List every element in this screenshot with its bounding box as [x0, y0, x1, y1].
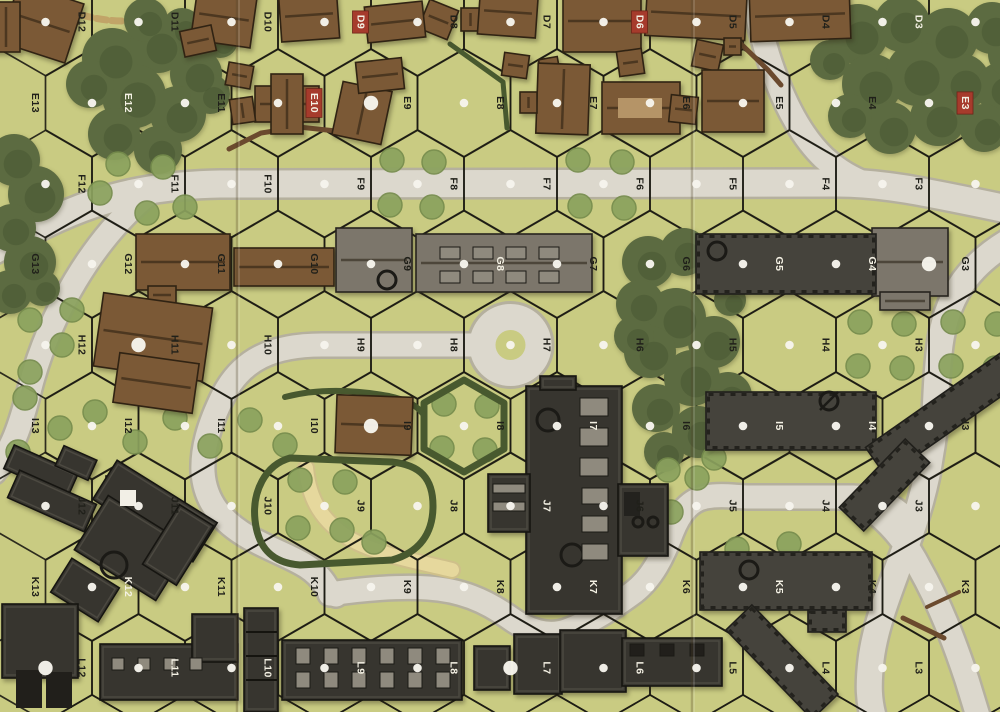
- hex-center-dot-G11: [274, 260, 283, 269]
- hex-label-H5: H5: [727, 338, 739, 352]
- window-row: [473, 271, 493, 283]
- hex-center-dot-J9: [413, 502, 422, 511]
- hex-center-dot-D12: [134, 18, 143, 27]
- orchard-tree: [273, 433, 297, 457]
- svg-text:I5: I5: [773, 421, 785, 431]
- window-row: [580, 398, 608, 416]
- hex-label-H8: H8: [448, 338, 460, 352]
- wood-building: [520, 92, 537, 113]
- hex-label-J10: J10: [262, 496, 274, 515]
- hex-label-F12: F12: [76, 174, 88, 194]
- svg-text:F8: F8: [448, 177, 460, 190]
- orchard-tree: [88, 181, 112, 205]
- orchard-tree: [362, 530, 386, 554]
- svg-text:H6: H6: [634, 338, 646, 352]
- hex-wargame-board: D12D11D10D9D8D7D6D5D4D3D2E13E12E11E10E9E…: [0, 0, 1000, 712]
- svg-text:D12: D12: [76, 12, 88, 33]
- svg-text:I11: I11: [215, 418, 227, 434]
- svg-text:I3: I3: [959, 421, 971, 431]
- window-row: [539, 247, 559, 259]
- hex-center-dot-K5: [832, 583, 841, 592]
- hex-label-J5: J5: [727, 500, 739, 513]
- svg-text:L6: L6: [634, 661, 646, 674]
- hex-label-H11: H11: [169, 335, 181, 355]
- hex-center-dot-G9: [460, 260, 469, 269]
- svg-text:L5: L5: [727, 661, 739, 674]
- hex-label-I7: I7: [587, 421, 599, 431]
- hex-center-dot-J7: [599, 502, 608, 511]
- orchard-tree: [892, 312, 916, 336]
- woods-texture: [904, 60, 939, 95]
- hex-label-K12: K12: [122, 577, 134, 598]
- hex-label-G7: G7: [587, 256, 599, 271]
- wood-building: [616, 48, 644, 76]
- svg-text:J7: J7: [541, 500, 553, 513]
- window-row: [380, 648, 394, 664]
- hex-label-L3: L3: [913, 661, 925, 674]
- hex-label-K9: K9: [401, 580, 413, 594]
- hex-center-dot-G6: [739, 260, 748, 269]
- hex-center-dot-F4: [878, 180, 887, 189]
- hex-center-dot-J8: [506, 502, 515, 511]
- hex-label-F6: F6: [634, 177, 646, 190]
- hex-center-dot-D7: [599, 18, 608, 27]
- hex-label-I10: I10: [308, 418, 320, 434]
- roof-mark: [120, 490, 136, 506]
- wood-building: [180, 25, 217, 57]
- svg-text:H4: H4: [820, 338, 832, 352]
- orchard-tree: [198, 434, 222, 458]
- hex-label-D10: D10: [262, 12, 274, 33]
- svg-text:K5: K5: [773, 580, 785, 594]
- hex-center-dot-G4: [922, 257, 936, 271]
- svg-text:H3: H3: [913, 338, 925, 352]
- svg-text:G3: G3: [959, 256, 971, 271]
- svg-text:J12: J12: [76, 496, 88, 515]
- hex-label-J6: J6: [634, 500, 646, 513]
- woods-texture: [975, 119, 1000, 145]
- hex-center-dot-I6: [739, 422, 748, 431]
- svg-text:F3: F3: [913, 177, 925, 190]
- hex-label-D3: D3: [913, 15, 925, 29]
- hex-center-dot-K9: [460, 583, 469, 592]
- orchard-tree: [566, 148, 590, 172]
- window-row: [660, 644, 674, 656]
- hex-label-E6: E6: [680, 96, 692, 110]
- hex-center-dot-J3: [971, 502, 980, 511]
- hex-center-dot-K8: [553, 583, 562, 592]
- woods-texture: [880, 118, 909, 147]
- svg-text:L8: L8: [448, 661, 460, 674]
- hex-label-D12: D12: [76, 12, 88, 33]
- hex-center-dot-H3: [971, 341, 980, 350]
- svg-text:F9: F9: [355, 177, 367, 190]
- woods-texture: [25, 183, 56, 214]
- fact-building: [540, 376, 576, 390]
- hex-center-dot-F10: [320, 180, 329, 189]
- hex-center-dot-L10: [320, 664, 329, 673]
- hex-label-J4: J4: [820, 500, 832, 513]
- woods-texture: [4, 150, 33, 179]
- woods-texture: [647, 399, 673, 425]
- hex-center-dot-K7: [646, 583, 655, 592]
- hex-label-I8: I8: [494, 421, 506, 431]
- hex-label-G6: G6: [680, 256, 692, 271]
- hex-label-I13: I13: [29, 418, 41, 434]
- svg-text:J5: J5: [727, 500, 739, 513]
- svg-text:L12: L12: [76, 658, 88, 678]
- orchard-tree: [378, 193, 402, 217]
- window-row: [580, 458, 608, 476]
- svg-text:J9: J9: [355, 500, 367, 513]
- hex-center-dot-I11: [274, 422, 283, 431]
- svg-text:H7: H7: [541, 338, 553, 352]
- hex-label-I12: I12: [122, 418, 134, 434]
- svg-text:H12: H12: [76, 335, 88, 356]
- hex-label-E5: E5: [773, 96, 785, 110]
- hex-center-dot-G10: [367, 260, 376, 269]
- svg-text:G8: G8: [494, 256, 506, 271]
- hex-label-G12: G12: [122, 253, 134, 274]
- hex-label-L12: L12: [76, 658, 88, 678]
- hex-label-E10: E10: [306, 89, 322, 118]
- hex-center-dot-E13: [88, 99, 97, 108]
- hex-center-dot-F7: [599, 180, 608, 189]
- orchard-tree: [135, 201, 159, 225]
- woods-texture: [3, 219, 29, 245]
- orchard-tree: [18, 308, 42, 332]
- hex-center-dot-F12: [134, 180, 143, 189]
- orchard-tree: [941, 310, 965, 334]
- hex-label-I6: I6: [680, 421, 692, 431]
- svg-text:K9: K9: [401, 580, 413, 594]
- svg-text:L4: L4: [820, 661, 832, 674]
- woods-texture: [104, 124, 133, 153]
- window-row: [408, 648, 422, 664]
- hex-center-dot-H7: [599, 341, 608, 350]
- hex-center-dot-L8: [503, 661, 517, 675]
- hex-label-H9: H9: [355, 338, 367, 352]
- orchard-tree: [612, 196, 636, 220]
- wood-building: [278, 0, 339, 42]
- svg-text:H8: H8: [448, 338, 460, 352]
- orchard-tree: [333, 470, 357, 494]
- hex-center-dot-L3: [971, 664, 980, 673]
- svg-text:J10: J10: [262, 496, 274, 515]
- svg-text:L10: L10: [262, 658, 274, 678]
- hex-center-dot-L7: [599, 664, 608, 673]
- svg-text:D10: D10: [262, 12, 274, 33]
- svg-text:D5: D5: [727, 15, 739, 29]
- hex-label-E13: E13: [29, 93, 41, 113]
- hex-center-dot-K13: [88, 583, 97, 592]
- orchard-tree: [18, 360, 42, 384]
- svg-text:G4: G4: [866, 256, 878, 271]
- hex-center-dot-L6: [692, 664, 701, 673]
- hex-center-dot-G5: [832, 260, 841, 269]
- hex-center-dot-E12: [181, 99, 190, 108]
- hex-label-F11: F11: [169, 174, 181, 193]
- window-row: [190, 658, 202, 670]
- svg-text:L9: L9: [355, 661, 367, 674]
- woods-texture: [936, 26, 969, 59]
- stone-building: [872, 228, 948, 296]
- hex-center-dot-D10: [320, 18, 329, 27]
- hex-center-dot-K11: [274, 583, 283, 592]
- svg-text:E8: E8: [494, 96, 506, 110]
- hex-label-D4: D4: [820, 15, 832, 29]
- svg-text:J6: J6: [634, 500, 646, 513]
- window-row: [506, 271, 526, 283]
- hex-label-E4: E4: [866, 96, 878, 110]
- orchard-tree: [48, 416, 72, 440]
- hex-center-dot-D9: [413, 18, 422, 27]
- wood-building: [113, 353, 199, 414]
- orchard-tree: [60, 298, 84, 322]
- hex-center-dot-D4: [878, 18, 887, 27]
- hex-center-dot-H12: [131, 338, 145, 352]
- hex-center-dot-I5: [832, 422, 841, 431]
- woods-texture: [725, 295, 743, 313]
- orchard-tree: [106, 152, 130, 176]
- hex-center-dot-D8: [506, 18, 515, 27]
- hex-label-G8: G8: [494, 256, 506, 271]
- svg-text:E4: E4: [866, 96, 878, 110]
- hex-center-dot-L5: [785, 664, 794, 673]
- window-row: [440, 271, 460, 283]
- wood-building: [724, 38, 741, 55]
- hex-label-H7: H7: [541, 338, 553, 352]
- hex-label-E7: E7: [587, 96, 599, 110]
- hex-center-dot-H11: [227, 341, 236, 350]
- hex-label-J7: J7: [541, 500, 553, 513]
- svg-text:H10: H10: [262, 335, 274, 356]
- hex-label-K5: K5: [773, 580, 785, 594]
- stone-building: [336, 228, 412, 292]
- hex-label-I11: I11: [215, 418, 227, 434]
- slate-building: [808, 610, 846, 632]
- hex-label-D5: D5: [727, 15, 739, 29]
- wood-building: [0, 2, 20, 52]
- hex-label-K11: K11: [215, 577, 227, 597]
- hex-center-dot-F6: [692, 180, 701, 189]
- hex-label-F9: F9: [355, 177, 367, 190]
- hex-center-dot-J4: [878, 502, 887, 511]
- hex-label-D9: D9: [353, 11, 369, 33]
- svg-text:G9: G9: [401, 256, 413, 271]
- hex-center-dot-L9: [413, 664, 422, 673]
- woods-texture: [36, 282, 56, 302]
- orchard-tree: [330, 518, 354, 542]
- orchard-tree: [656, 458, 680, 482]
- svg-text:F5: F5: [727, 177, 739, 190]
- hex-center-dot-E7: [646, 99, 655, 108]
- hex-label-L9: L9: [355, 661, 367, 674]
- hex-center-dot-H9: [413, 341, 422, 350]
- hex-center-dot-E10: [364, 96, 378, 110]
- hex-label-L10: L10: [262, 658, 274, 678]
- window-row: [324, 672, 338, 688]
- hex-label-F7: F7: [541, 177, 553, 190]
- svg-text:E3: E3: [959, 96, 971, 110]
- hex-center-dot-K6: [739, 583, 748, 592]
- svg-text:G13: G13: [29, 253, 41, 274]
- wood-building: [691, 39, 723, 71]
- hex-label-G5: G5: [773, 256, 785, 271]
- hex-center-dot-J11: [227, 502, 236, 511]
- svg-text:J11: J11: [169, 497, 181, 515]
- hex-center-dot-H6: [692, 341, 701, 350]
- svg-text:E5: E5: [773, 96, 785, 110]
- hex-center-dot-I8: [553, 422, 562, 431]
- hex-label-K4: K4: [866, 580, 878, 594]
- svg-text:I9: I9: [401, 421, 413, 431]
- hex-center-dot-F11: [227, 180, 236, 189]
- hex-center-dot-F8: [506, 180, 515, 189]
- hex-center-dot-K12: [181, 583, 190, 592]
- hex-label-G10: G10: [308, 253, 320, 274]
- svg-text:K6: K6: [680, 580, 692, 594]
- slate-building: [700, 552, 872, 610]
- hex-label-J11: J11: [169, 497, 181, 515]
- hex-label-L5: L5: [727, 661, 739, 674]
- hex-center-dot-H10: [320, 341, 329, 350]
- orchard-tree: [422, 150, 446, 174]
- hex-center-dot-E9: [460, 99, 469, 108]
- svg-text:I7: I7: [587, 421, 599, 431]
- svg-text:F4: F4: [820, 177, 832, 190]
- hex-label-D7: D7: [541, 15, 553, 29]
- orchard-tree: [685, 466, 709, 490]
- hex-center-dot-J13: [41, 502, 50, 511]
- hex-center-dot-E5: [832, 99, 841, 108]
- hex-label-I9: I9: [401, 421, 413, 431]
- window-row: [473, 247, 493, 259]
- wood-building: [702, 70, 764, 132]
- hex-center-dot-I13: [88, 422, 97, 431]
- woods-texture: [927, 107, 958, 138]
- orchard-tree: [420, 195, 444, 219]
- hex-label-E9: E9: [401, 96, 413, 110]
- orchard-tree: [380, 148, 404, 172]
- hex-label-K10: K10: [308, 577, 320, 598]
- hex-label-F3: F3: [913, 177, 925, 190]
- fact-building: [514, 634, 562, 694]
- svg-text:G7: G7: [587, 256, 599, 271]
- window-row: [324, 648, 338, 664]
- svg-text:G5: G5: [773, 256, 785, 271]
- orchard-tree: [83, 400, 107, 424]
- hex-center-dot-F9: [413, 180, 422, 189]
- svg-text:J4: J4: [820, 500, 832, 513]
- hex-center-dot-G12: [181, 260, 190, 269]
- hex-center-dot-J12: [134, 502, 143, 511]
- roof-mark: [16, 670, 42, 708]
- hex-center-dot-H4: [878, 341, 887, 350]
- hex-label-E11: E11: [215, 93, 227, 113]
- hex-center-dot-G7: [646, 260, 655, 269]
- svg-text:D6: D6: [634, 15, 646, 29]
- hex-center-dot-E11: [274, 99, 283, 108]
- svg-text:I10: I10: [308, 418, 320, 434]
- svg-text:L7: L7: [541, 661, 553, 674]
- hex-center-dot-L13: [38, 661, 52, 675]
- wood-building: [749, 0, 851, 42]
- svg-text:G6: G6: [680, 256, 692, 271]
- svg-text:F12: F12: [76, 174, 88, 194]
- svg-text:I12: I12: [122, 418, 134, 434]
- orchard-tree: [173, 195, 197, 219]
- hex-center-dot-F13: [41, 180, 50, 189]
- hex-center-dot-J5: [785, 502, 794, 511]
- hex-label-D8: D8: [448, 15, 460, 29]
- hex-center-dot-I4: [925, 422, 934, 431]
- svg-text:H9: H9: [355, 338, 367, 352]
- svg-text:E11: E11: [215, 93, 227, 113]
- slate-building: [706, 392, 876, 450]
- hex-center-dot-K4: [925, 583, 934, 592]
- orchard-tree: [286, 516, 310, 540]
- svg-text:K11: K11: [215, 577, 227, 597]
- hex-label-L4: L4: [820, 661, 832, 674]
- hex-center-dot-F3: [971, 180, 980, 189]
- hex-label-E3: E3: [957, 92, 973, 114]
- hex-center-dot-K10: [367, 583, 376, 592]
- hex-label-J9: J9: [355, 500, 367, 513]
- svg-text:D3: D3: [913, 15, 925, 29]
- hex-label-L7: L7: [541, 661, 553, 674]
- hex-label-H4: H4: [820, 338, 832, 352]
- window-row: [582, 488, 608, 504]
- woods-texture: [2, 284, 26, 308]
- hex-label-G3: G3: [959, 256, 971, 271]
- orchard-tree: [890, 356, 914, 380]
- svg-text:E6: E6: [680, 96, 692, 110]
- orchard-tree: [288, 468, 312, 492]
- window-row: [296, 648, 310, 664]
- hex-label-I3: I3: [959, 421, 971, 431]
- window-row: [380, 672, 394, 688]
- hex-label-K6: K6: [680, 580, 692, 594]
- window-row: [296, 672, 310, 688]
- svg-text:F6: F6: [634, 177, 646, 190]
- svg-text:G11: G11: [215, 254, 227, 275]
- hex-label-E8: E8: [494, 96, 506, 110]
- hex-center-dot-E8: [553, 99, 562, 108]
- hex-center-dot-D5: [785, 18, 794, 27]
- hex-label-H12: H12: [76, 335, 88, 356]
- hex-label-I4: I4: [866, 421, 878, 431]
- fact-building: [560, 630, 626, 692]
- hex-center-dot-J10: [320, 502, 329, 511]
- hex-label-H10: H10: [262, 335, 274, 356]
- svg-text:H5: H5: [727, 338, 739, 352]
- woods-texture: [631, 295, 657, 321]
- hex-label-F5: F5: [727, 177, 739, 190]
- svg-text:E13: E13: [29, 93, 41, 113]
- hex-label-H3: H3: [913, 338, 925, 352]
- hex-center-dot-L12: [134, 664, 143, 673]
- hex-label-I5: I5: [773, 421, 785, 431]
- svg-text:E7: E7: [587, 96, 599, 110]
- wood-building: [356, 58, 405, 94]
- hex-center-dot-L4: [878, 664, 887, 673]
- svg-text:K4: K4: [866, 580, 878, 594]
- svg-text:K7: K7: [587, 580, 599, 594]
- orchard-tree: [50, 333, 74, 357]
- svg-text:E9: E9: [401, 96, 413, 110]
- window-row: [408, 672, 422, 688]
